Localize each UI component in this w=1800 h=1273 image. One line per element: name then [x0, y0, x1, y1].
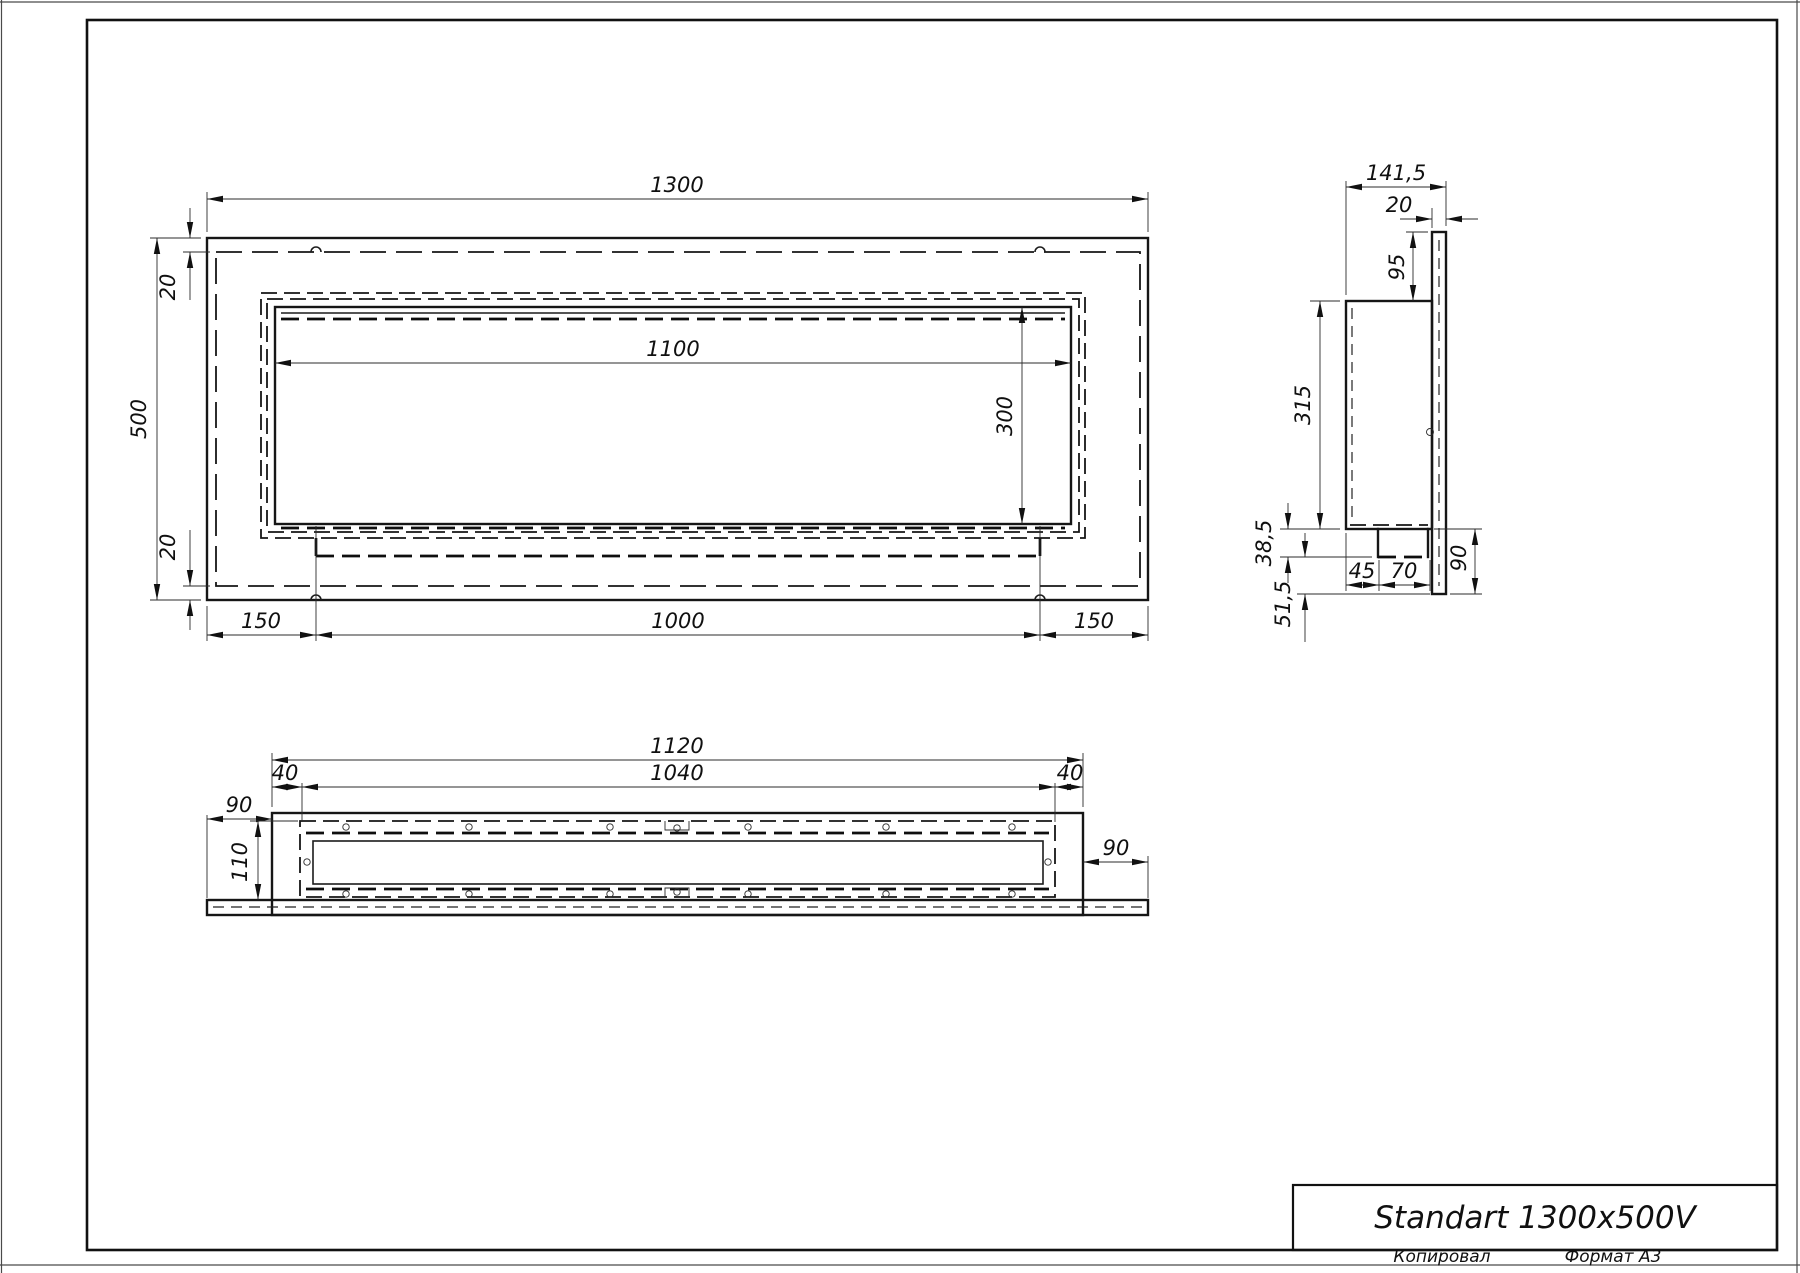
dim-side-tray-offset: 45 — [1349, 559, 1376, 583]
drawing-page: 1300 500 20 20 1100 300 150 1000 150 — [0, 0, 1800, 1273]
side-body — [1346, 301, 1432, 529]
dim-bottom-margin-right: 40 — [1057, 761, 1084, 785]
dim-front-overall-width: 1300 — [650, 173, 703, 197]
bottom-notch-top — [665, 821, 689, 830]
dim-front-mount-right: 150 — [1074, 609, 1114, 633]
bottom-view: 1120 40 1040 40 90 110 90 — [207, 734, 1148, 915]
dim-side-tray-width: 70 — [1391, 559, 1418, 583]
bottom-opening — [313, 841, 1043, 884]
dim-bottom-margin-left: 40 — [272, 761, 299, 785]
dim-front-mount-left: 150 — [241, 609, 281, 633]
dim-bottom-housing-width: 1120 — [650, 734, 703, 758]
dim-front-bottom-inset: 20 — [156, 534, 180, 561]
dim-front-top-inset: 20 — [156, 274, 180, 301]
side-view: 141,5 20 95 315 38,5 51,5 45 70 — [1252, 161, 1482, 642]
bottom-screw-holes — [304, 824, 1051, 897]
title-block: Standart 1300x500V Копировал Формат А3 — [1293, 1185, 1777, 1267]
dim-side-flange-thickness: 20 — [1386, 193, 1413, 217]
front-opening-hidden-outer — [261, 293, 1085, 538]
dim-front-overall-height: 500 — [127, 399, 151, 439]
title-block-model: Standart 1300x500V — [1374, 1200, 1698, 1236]
dim-side-overall-depth: 141,5 — [1366, 161, 1426, 185]
dim-side-bottom-clearance: 51,5 — [1271, 581, 1295, 628]
dim-side-body-depth: 315 — [1291, 385, 1315, 425]
copied-by-label: Копировал — [1393, 1247, 1490, 1267]
dim-bottom-overhang-right: 90 — [1103, 836, 1130, 860]
drawing-canvas: 1300 500 20 20 1100 300 150 1000 150 — [0, 0, 1800, 1273]
front-opening-hidden-inner — [267, 299, 1079, 532]
dim-bottom-overhang-left: 90 — [226, 793, 253, 817]
dim-bottom-housing-depth: 110 — [228, 842, 252, 882]
front-view: 1300 500 20 20 1100 300 150 1000 150 — [127, 173, 1148, 641]
dim-side-top-offset: 95 — [1385, 254, 1409, 281]
dim-side-flange-drop: 90 — [1447, 545, 1471, 572]
dim-bottom-opening-width: 1040 — [650, 761, 703, 785]
dim-front-opening-width: 1100 — [646, 337, 699, 361]
dim-front-mount-span: 1000 — [651, 609, 704, 633]
dim-front-opening-height: 300 — [993, 396, 1017, 436]
format-label: Формат А3 — [1565, 1247, 1662, 1267]
dim-side-tray-step: 38,5 — [1252, 520, 1276, 567]
mount-slot-top-right — [1035, 247, 1045, 252]
